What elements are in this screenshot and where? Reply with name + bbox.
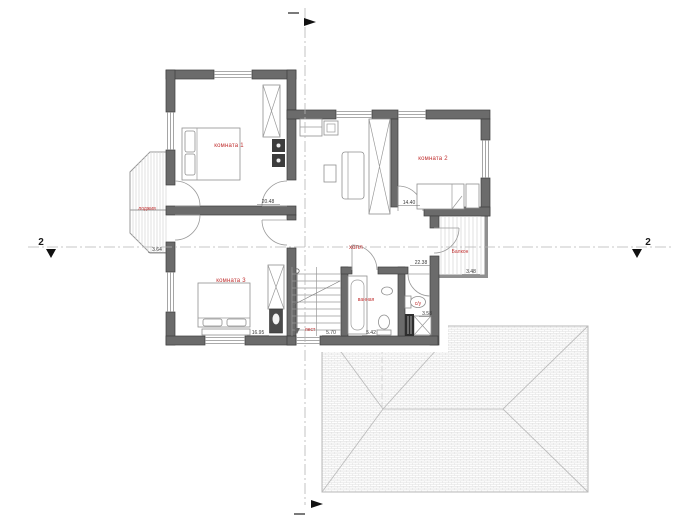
area-stairs: 5.70	[326, 330, 336, 336]
area-hall: 22.38	[415, 260, 428, 266]
section-marker-left: 2	[38, 237, 56, 258]
north-arrow-top	[288, 13, 316, 26]
north-arrow-icon	[304, 18, 316, 26]
furniture-room3	[198, 283, 250, 335]
bed-icon	[417, 184, 464, 209]
cabinet-icon	[300, 119, 322, 136]
room-label-hall: холл	[349, 245, 363, 251]
pillow-icon	[185, 154, 195, 175]
coffee-table-icon	[324, 165, 336, 182]
pillow-icon	[185, 131, 195, 152]
vent-shaft	[268, 265, 284, 333]
area-room3: 16.95	[252, 330, 265, 336]
area-balcony: 3.48	[466, 269, 476, 275]
loggia	[130, 152, 168, 253]
north-arrow-icon	[311, 500, 323, 508]
sofa-icon	[342, 152, 364, 199]
sink-icon	[382, 287, 393, 295]
area-room2: 14.40	[403, 200, 416, 206]
washer-icon	[405, 314, 414, 336]
room-label-room3: комната 3	[216, 278, 246, 284]
room-label-wc: с/у	[415, 301, 422, 307]
toilet-icon	[379, 315, 390, 329]
pillow-icon	[227, 319, 246, 326]
room-label-room1: комната 1	[214, 143, 244, 149]
area-room1: 20.48	[262, 199, 275, 205]
furniture-room2	[417, 184, 479, 209]
area-bathroom: 5.42	[366, 330, 376, 336]
nightstand-icon	[466, 184, 479, 208]
area-loggia: 3.64	[152, 247, 162, 253]
floor-plan-page: 2 2 комната 1 20.48 комната 2 14.40 комн…	[0, 0, 700, 525]
room-label-stairs: лест	[305, 327, 316, 333]
table-icon	[324, 121, 338, 135]
floor-plan-drawing: 2 2 комната 1 20.48 комната 2 14.40 комн…	[0, 0, 700, 525]
section-arrow-icon	[632, 249, 642, 258]
room-label-loggia: лоджия	[138, 206, 156, 212]
section-marker-right: 2	[632, 237, 651, 258]
area-wc: 3.58	[422, 311, 432, 317]
bench-icon	[202, 329, 250, 335]
room-label-bathroom: ванная	[358, 297, 375, 303]
section-arrow-icon	[46, 249, 56, 258]
pillow-icon	[203, 319, 222, 326]
room-label-room2: комната 2	[418, 156, 448, 162]
room-label-balcony: Балкон	[452, 249, 469, 255]
north-arrow-bottom	[294, 500, 323, 514]
section-label-right: 2	[645, 237, 651, 248]
section-label-left: 2	[38, 237, 44, 248]
